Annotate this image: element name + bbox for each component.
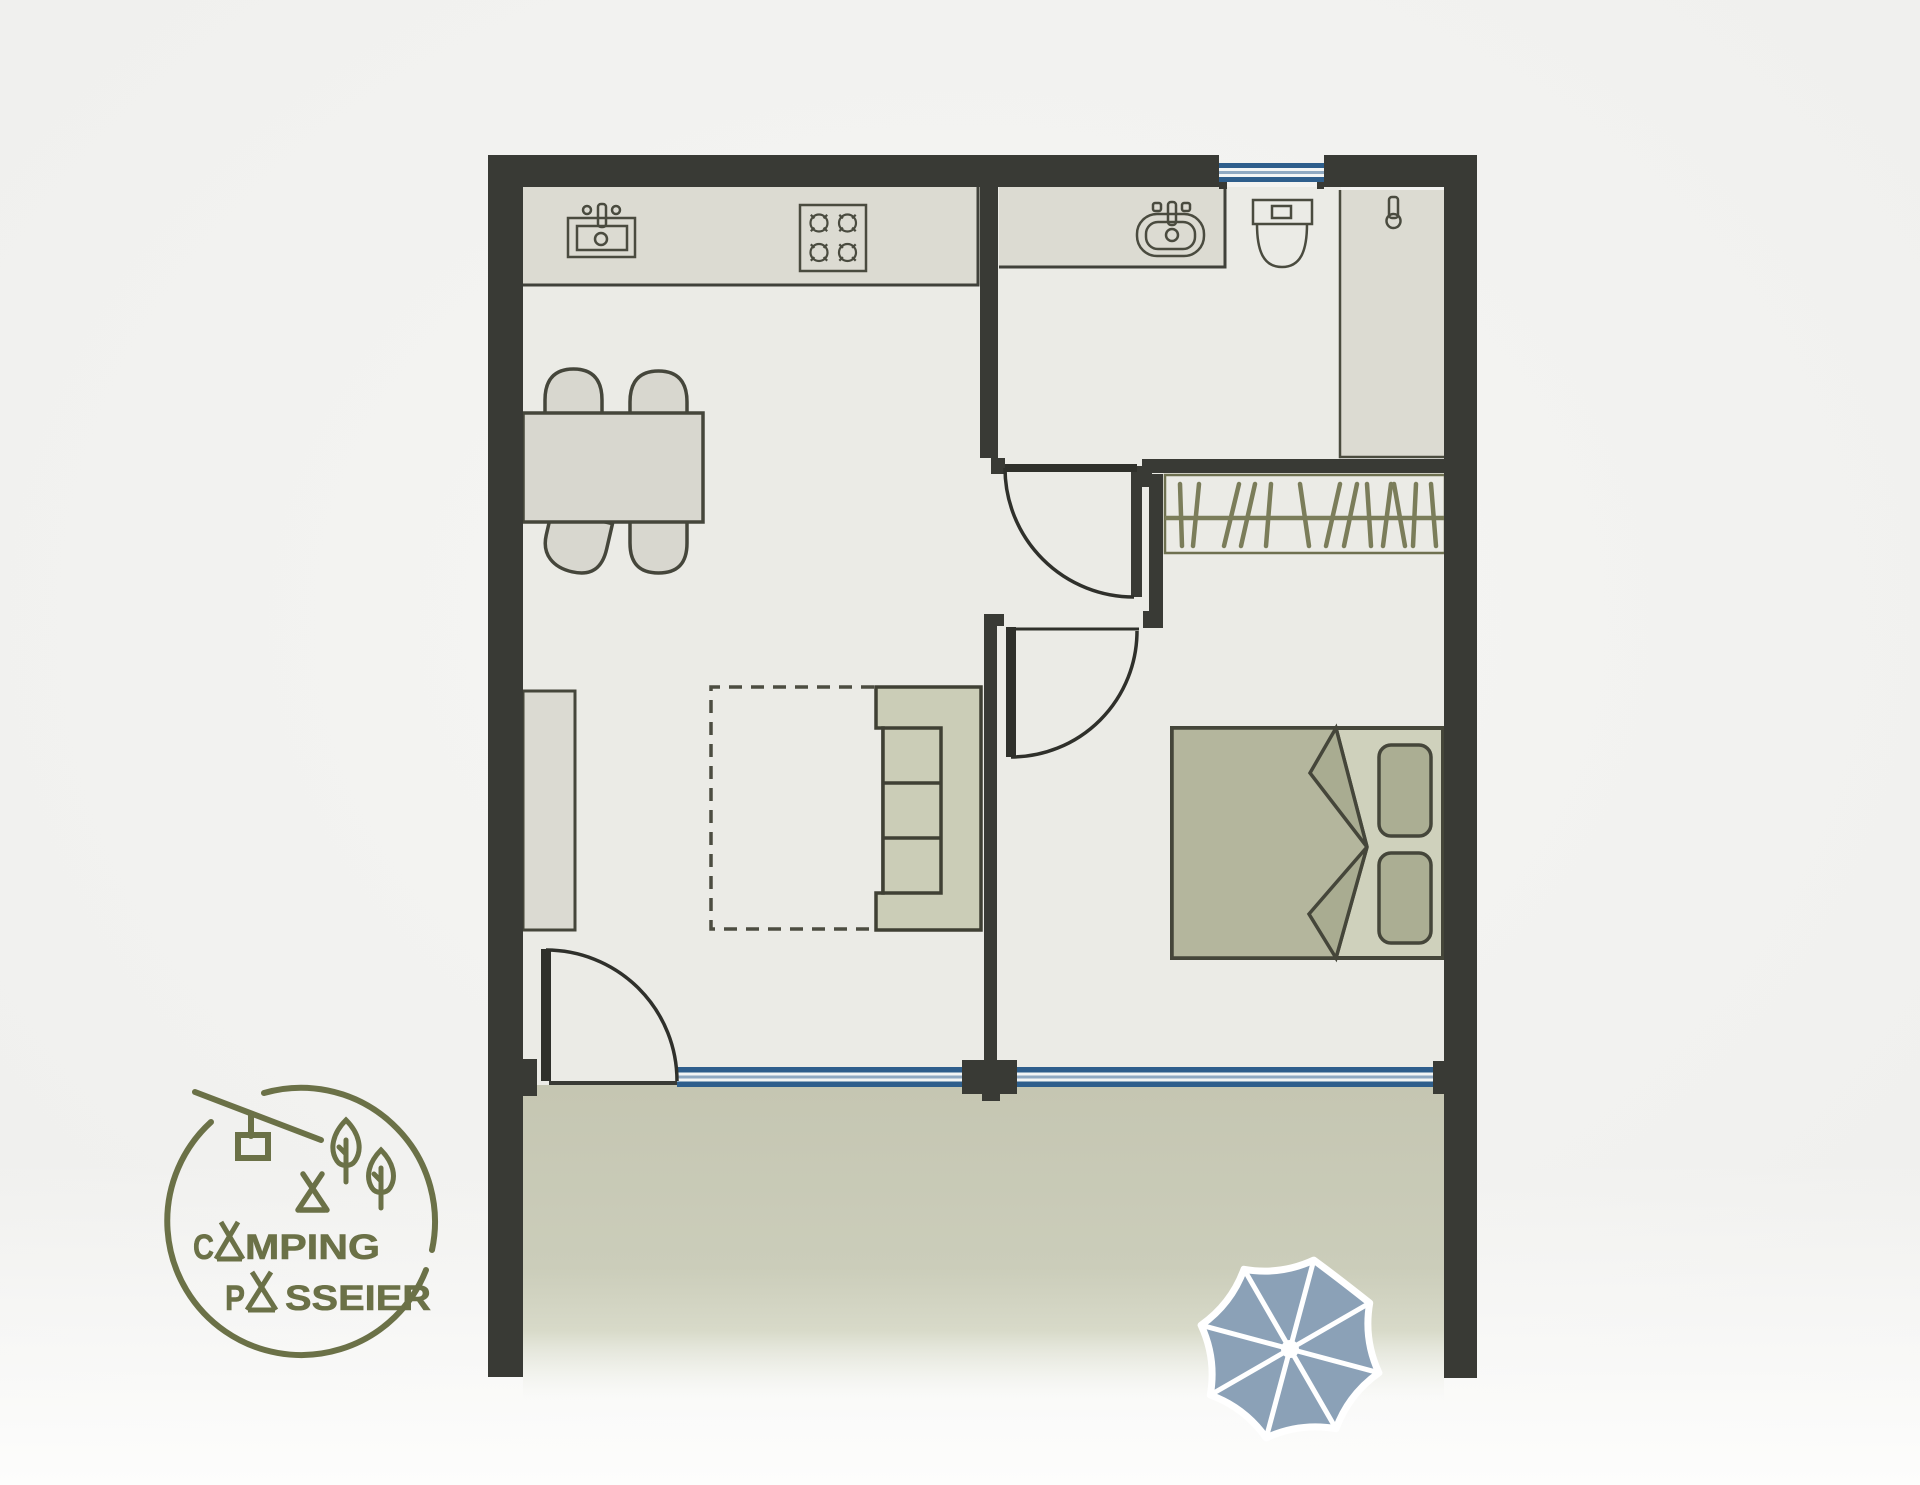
svg-text:C: C	[193, 1228, 214, 1267]
svg-text:P: P	[225, 1279, 245, 1318]
svg-text:SSEIER: SSEIER	[285, 1279, 431, 1318]
svg-text:MPING: MPING	[245, 1228, 380, 1267]
